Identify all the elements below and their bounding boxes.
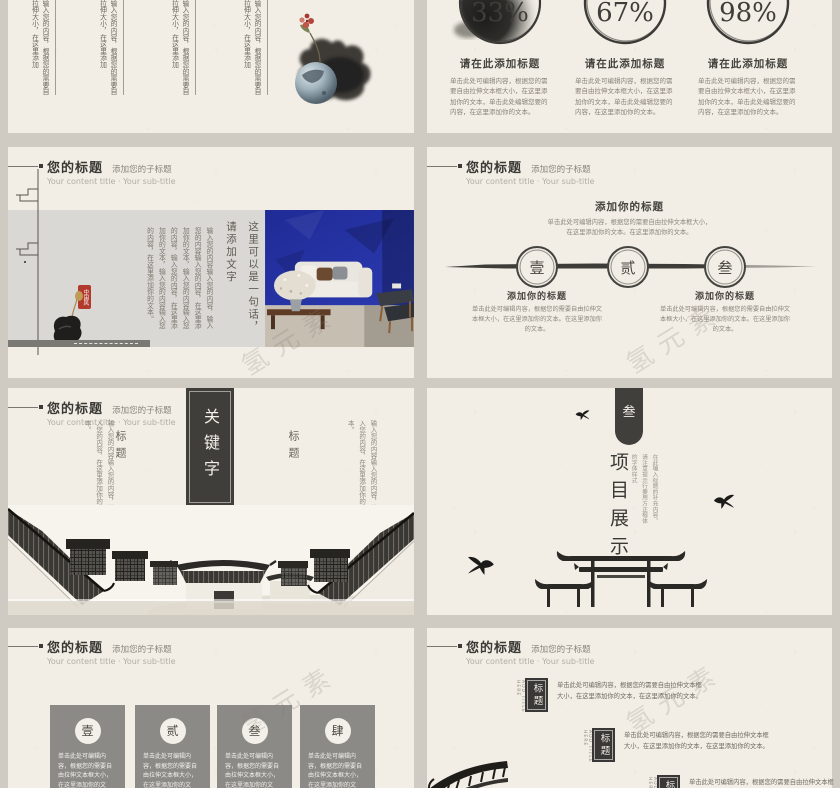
keyword-right-title: 标题 xyxy=(285,430,301,494)
step-circle-3: 叁 xyxy=(704,246,746,288)
ribbon-badge: 叁 xyxy=(615,388,643,445)
header-subtitle-en: Your content title · Your sub-title xyxy=(466,657,595,666)
title-box: 标题 xyxy=(525,678,548,712)
header-title: 您的标题 xyxy=(47,402,103,417)
keyword-left-body: 输入您的内容输入您的内容，输入您的内容，在这里添加你的文本。 xyxy=(65,420,115,514)
ink-circle-smudge: 98% xyxy=(698,0,798,48)
intro-paragraph: 请输入您的内容，根据您的需要自由拉伸大小，在这里添加 xyxy=(232,0,262,95)
header-title: 您的标题 xyxy=(47,161,103,176)
header-line xyxy=(8,646,38,647)
step-text-middle: 添加你的标题 单击此处可编辑内容，根据您的需要自由拉伸文本框大小，在这里添加你的… xyxy=(547,199,712,238)
number-card: 壹 单击此处可编辑内容，根据您的需要自由拉伸文本框大小，在这里添加你的文本，在这… xyxy=(50,705,125,788)
step-title: 添加你的标题 xyxy=(472,289,602,302)
header-title: 您的标题 xyxy=(466,161,522,176)
slide-header: 您的标题 添加您的子标题 Your content title · Your s… xyxy=(427,157,595,186)
intro-paragraph: 请输入您的内容，根据您的需要自由拉伸大小，在这里添加 xyxy=(160,0,190,95)
header-subtitle-en: Your content title · Your sub-title xyxy=(466,177,595,186)
title-box: 标题 xyxy=(657,775,680,788)
ink-circle-outline: 67% xyxy=(575,0,675,48)
slide-thumbnail-project[interactable]: 叁 项目展示 在此输入标题的补充内容，请注意提示行要用方正楷体的字体样式 xyxy=(427,388,832,615)
header-subtitle: 添加您的子标题 xyxy=(531,645,591,655)
intro-column: 请输入您的内容，根据您的需要自由拉伸大小，在这里添加 目 xyxy=(160,0,196,95)
interior-photo xyxy=(265,210,414,347)
template-preview-canvas: 请输入您的内容，根据您的需要自由拉伸大小，在这里添加 目 请输入您的内容，根据您… xyxy=(0,0,840,788)
step-number: 叁 xyxy=(717,257,732,278)
header-line xyxy=(8,166,38,167)
ink-vase-flower-art xyxy=(280,5,376,121)
number-card: 贰 单击此处可编辑内容，根据您的需要自由拉伸文本框大小，在这里添加你的文本，在这… xyxy=(135,705,210,788)
header-line xyxy=(427,166,457,167)
number-card: 叁 单击此处可编辑内容，根据您的需要自由拉伸文本框大小，在这里添加你的文本，在这… xyxy=(217,705,292,788)
panel-headline-text: 这里可以是一句话，请添加文字 xyxy=(220,221,264,343)
title-box-label: 标题 xyxy=(662,780,676,788)
stat-body: 单击此处可编辑内容，根据您的需要自由拉伸文本框大小，在这里添加你的文本，单击此处… xyxy=(575,76,675,118)
title-body: 单击此处可编辑内容，根据您的需要自由拉伸文本框大小，在这里添加你的文本，在这里添… xyxy=(689,778,839,788)
title-box-label: 标题 xyxy=(530,683,544,708)
intro-column: 请输入您的内容，根据您的需要自由拉伸大小，在这里添加 目 xyxy=(20,0,56,95)
stat-body: 单击此处可编辑内容，根据您的需要自由拉伸文本框大小，在这里添加你的文本，单击此处… xyxy=(450,76,550,118)
title-body: 单击此处可编辑内容，根据您的需要自由拉伸文本框大小，在这里添加你的文本，在这里添… xyxy=(624,731,774,752)
step-number: 贰 xyxy=(620,257,635,278)
stat-title: 请在此添加标题 xyxy=(440,56,560,71)
step-number: 壹 xyxy=(529,257,544,278)
intro-paragraph: 请输入您的内容，根据您的需要自由拉伸大小，在这里添加 xyxy=(88,0,118,95)
side-label: ADD TITLE HERE xyxy=(647,777,657,788)
header-subtitle: 添加您的子标题 xyxy=(112,406,172,416)
step-body: 单击此处可编辑内容，根据您的需要自由拉伸文本框大小，在这里添加你的文本。在这里添… xyxy=(660,305,790,335)
header-subtitle: 添加您的子标题 xyxy=(531,165,591,175)
number-card: 肆 单击此处可编辑内容，根据您的需要自由拉伸文本框大小，在这里添加你的文本，在这… xyxy=(300,705,375,788)
title-body: 单击此处可编辑内容，根据您的需要自由拉伸文本框大小，在这里添加你的文本，在这里添… xyxy=(557,681,707,702)
header-dot-icon xyxy=(39,164,43,168)
swallow-icon xyxy=(575,410,590,420)
step-title: 添加你的标题 xyxy=(547,199,712,214)
step-text-right: 添加你的标题 单击此处可编辑内容，根据您的需要自由拉伸文本框大小，在这里添加你的… xyxy=(660,289,790,335)
keyword-banner-border: 关键字 xyxy=(189,391,231,503)
panel-body-text: 输入您的内容输入您的内容，输入您的内容输入您的内容，在这里添加你的文本，输入您的… xyxy=(112,227,214,333)
stat-percent: 98% xyxy=(719,0,777,28)
ink-circle-filled: 33% xyxy=(450,0,550,48)
column-divider xyxy=(123,0,124,95)
stat-item: 98% 请在此添加标题 单击此处可编辑内容，根据您的需要自由拉伸文本框大小，在这… xyxy=(688,0,808,118)
header-dot-icon xyxy=(458,164,462,168)
stat-title: 请在此添加标题 xyxy=(688,56,808,71)
keyword-left-title: 标题 xyxy=(112,430,128,494)
rooftops-photo xyxy=(8,505,414,615)
card-body: 单击此处可编辑内容，根据您的需要自由拉伸文本框大小，在这里添加你的文本，在这里添… xyxy=(217,752,292,788)
stat-percent: 33% xyxy=(471,0,529,28)
swallow-icon xyxy=(467,556,495,575)
slide-thumbnail-intro[interactable]: 请输入您的内容，根据您的需要自由拉伸大小，在这里添加 目 请输入您的内容，根据您… xyxy=(8,0,414,133)
step-body: 单击此处可编辑内容，根据您的需要自由拉伸文本框大小，在这里添加你的文本。在这里添… xyxy=(547,218,712,238)
card-number: 壹 xyxy=(75,718,101,744)
keyword-banner: 关键字 xyxy=(186,388,234,506)
card-number: 肆 xyxy=(325,718,351,744)
stat-item: 67% 请在此添加标题 单击此处可编辑内容，根据您的需要自由拉伸文本框大小，在这… xyxy=(565,0,685,118)
header-dot-icon xyxy=(39,644,43,648)
step-body: 单击此处可编辑内容，根据您的需要自由拉伸文本框大小，在这里添加你的文本。在这里添… xyxy=(472,305,602,335)
swallow-icon xyxy=(713,494,735,509)
step-text-left: 添加你的标题 单击此处可编辑内容，根据您的需要自由拉伸文本框大小，在这里添加你的… xyxy=(472,289,602,335)
header-line xyxy=(427,646,457,647)
slide-thumbnail-keyword[interactable]: 您的标题 添加您的子标题 Your content title · Your s… xyxy=(8,388,414,615)
intro-column: 请输入您的内容，根据您的需要自由拉伸大小，在这里添加 目 xyxy=(88,0,124,95)
header-subtitle: 添加您的子标题 xyxy=(112,645,172,655)
card-body: 单击此处可编辑内容，根据您的需要自由拉伸文本框大小，在这里添加你的文本，在这里添… xyxy=(50,752,125,788)
intro-column: 请输入您的内容，根据您的需要自由拉伸大小，在这里添加 目 xyxy=(232,0,268,95)
slide-header: 您的标题 添加您的子标题 Your content title · Your s… xyxy=(427,637,595,666)
side-label: ADD TITLE HERE xyxy=(515,680,525,716)
slide-thumbnail-stats[interactable]: 33% 请在此添加标题 单击此处可编辑内容，根据您的需要自由拉伸文本框大小，在这… xyxy=(427,0,832,133)
stat-body: 单击此处可编辑内容，根据您的需要自由拉伸文本框大小，在这里添加你的文本，单击此处… xyxy=(698,76,798,118)
project-note: 在此输入标题的补充内容，请注意提示行要用方正楷体的字体样式 xyxy=(639,454,659,528)
slide-thumbnail-titles[interactable]: 您的标题 添加您的子标题 Your content title · Your s… xyxy=(427,628,832,788)
title-box-label: 标题 xyxy=(597,733,611,758)
slide-thumbnail-cards[interactable]: 您的标题 添加您的子标题 Your content title · Your s… xyxy=(8,628,414,788)
header-title: 您的标题 xyxy=(47,641,103,656)
keyword-text: 关键字 xyxy=(198,408,222,486)
column-divider xyxy=(195,0,196,95)
side-label: ADD TITLE HERE xyxy=(582,730,592,766)
header-title: 您的标题 xyxy=(466,641,522,656)
card-number: 贰 xyxy=(160,718,186,744)
header-dot-icon xyxy=(458,644,462,648)
slide-thumbnail-steps[interactable]: 您的标题 添加您的子标题 Your content title · Your s… xyxy=(427,147,832,378)
dashed-line xyxy=(74,343,138,344)
header-subtitle: 添加您的子标题 xyxy=(112,165,172,175)
gate-silhouette xyxy=(533,541,709,609)
column-divider xyxy=(267,0,268,95)
step-title: 添加你的标题 xyxy=(660,289,790,302)
stat-percent: 67% xyxy=(596,0,654,28)
slide-thumbnail-photo[interactable]: 您的标题 添加您的子标题 Your content title · Your s… xyxy=(8,147,414,378)
panel-bottom-bar xyxy=(8,340,150,347)
header-subtitle-en: Your content title · Your sub-title xyxy=(47,177,176,186)
card-body: 单击此处可编辑内容，根据您的需要自由拉伸文本框大小，在这里添加你的文本，在这里添… xyxy=(300,752,375,788)
stat-title: 请在此添加标题 xyxy=(565,56,685,71)
intro-paragraph: 请输入您的内容，根据您的需要自由拉伸大小，在这里添加 xyxy=(20,0,50,95)
title-box: 标题 xyxy=(592,728,615,762)
header-subtitle-en: Your content title · Your sub-title xyxy=(47,657,176,666)
stat-item: 33% 请在此添加标题 单击此处可编辑内容，根据您的需要自由拉伸文本框大小，在这… xyxy=(440,0,560,118)
card-body: 单击此处可编辑内容，根据您的需要自由拉伸文本框大小，在这里添加你的文本，在这里添… xyxy=(135,752,210,788)
badge-number: 叁 xyxy=(622,401,635,420)
card-number: 叁 xyxy=(242,718,268,744)
ink-roof-art xyxy=(427,755,509,788)
header-dot-icon xyxy=(39,405,43,409)
column-divider xyxy=(55,0,56,95)
header-line xyxy=(8,407,38,408)
step-circle-1: 壹 xyxy=(516,246,558,288)
slide-header: 您的标题 添加您的子标题 Your content title · Your s… xyxy=(8,637,176,666)
step-circle-2: 贰 xyxy=(607,246,649,288)
keyword-right-body: 输入您的内容输入您的内容，输入您的内容，在这里添加你的文本。 xyxy=(328,420,378,514)
